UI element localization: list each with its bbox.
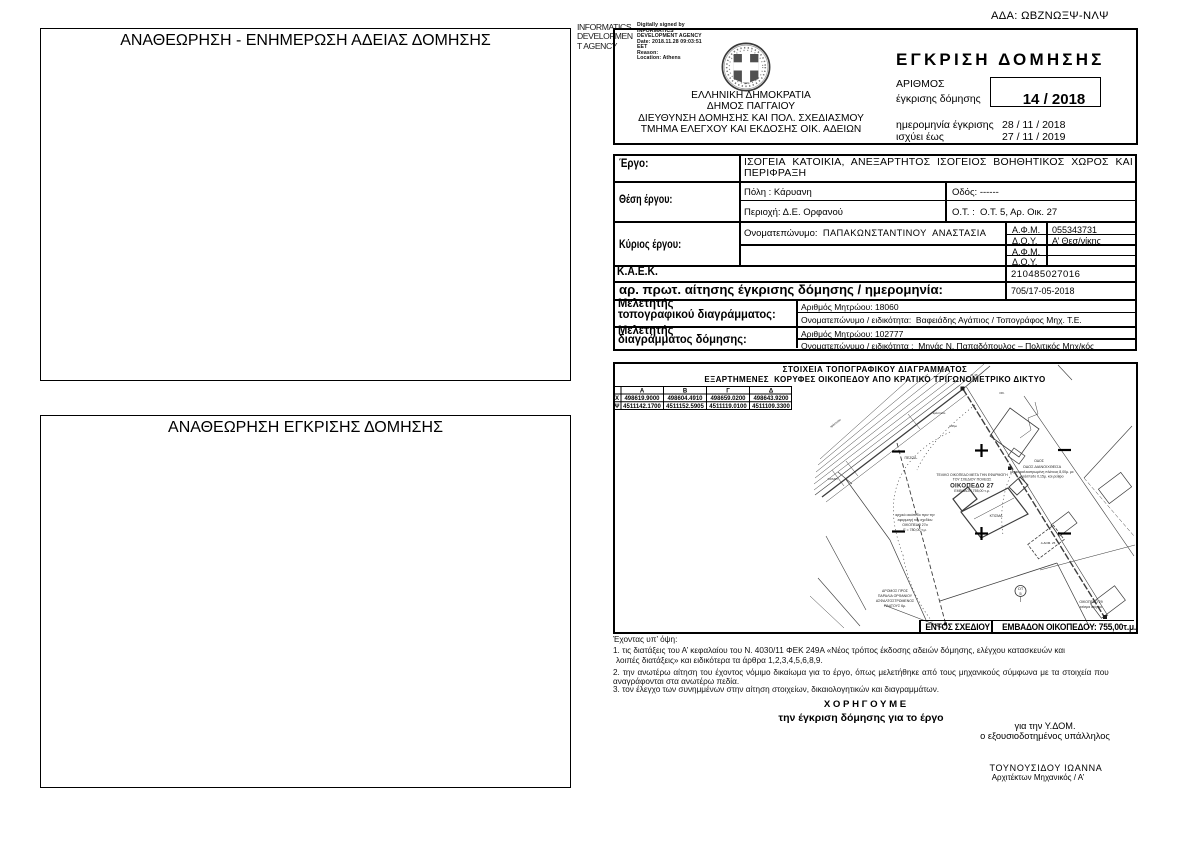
svg-text:5: 5 [1019, 591, 1022, 596]
svg-text:ΟΙΚΟΠΕΔΟ 27α: ΟΙΚΟΠΕΔΟ 27α [902, 523, 927, 527]
svg-text:ΟΔΟΣ: ΟΔΟΣ [1034, 459, 1045, 463]
svg-text:κράσπεδο 0,15μ. και ρείθρο: κράσπεδο 0,15μ. και ρείθρο [1020, 475, 1063, 479]
svg-text:ΑΣΦΑΛΤΟΣΤΡΩΜΕΝΟΣ: ΑΣΦΑΛΤΟΣΤΡΩΜΕΝΟΣ [876, 599, 915, 603]
svg-text:κτίσμα ισόγειο: κτίσμα ισόγειο [1080, 605, 1102, 609]
svg-text:κράσπεδο: κράσπεδο [829, 418, 842, 429]
svg-text:ΠΕΖΟΔ.: ΠΕΖΟΔ. [905, 456, 918, 460]
svg-text:Ε = 780,00 τ.μ.: Ε = 780,00 τ.μ. [903, 528, 926, 532]
svg-text:ΚΡΑΣΠ.: ΚΡΑΣΠ. [828, 477, 839, 481]
svg-text:κράσπεδο: κράσπεδο [933, 411, 946, 415]
svg-text:ΟΔΟΣ ΔΙΑΝΟΙΧΘΕΙΣΑ: ΟΔΟΣ ΔΙΑΝΟΙΧΘΕΙΣΑ [1023, 465, 1062, 469]
svg-text:ρείθρο: ρείθρο [949, 424, 958, 428]
svg-text:μη ασφαλτοστρωμένη πλάτους 8,0: μη ασφαλτοστρωμένη πλάτους 8,00μ. με [1010, 470, 1074, 474]
svg-text:αρχικό οικόπεδο πριν την: αρχικό οικόπεδο πριν την [895, 513, 935, 517]
svg-text:ΠΛΑΤΟΥΣ 6μ.: ΠΛΑΤΟΥΣ 6μ. [884, 604, 906, 608]
svg-text:21.35: 21.35 [971, 373, 978, 377]
svg-text:ΠΑΡΑΛΙΑ ΟΡΦΑΝΙΟΥ: ΠΑΡΑΛΙΑ ΟΡΦΑΝΙΟΥ [878, 594, 913, 598]
svg-text:Α.ΔΟΜ. 25: Α.ΔΟΜ. 25 [1041, 541, 1056, 545]
svg-text:ΚΤΙΣΜΑ: ΚΤΙΣΜΑ [990, 514, 1004, 518]
svg-text:ΕΜΒΑΔΟΝ 755,00 τ.μ.: ΕΜΒΑΔΟΝ 755,00 τ.μ. [954, 489, 989, 493]
svg-text:ΤΟΥ ΣΧΕΔΙΟΥ ΠΟΛΕΩΣ: ΤΟΥ ΣΧΕΔΙΟΥ ΠΟΛΕΩΣ [953, 478, 992, 482]
svg-text:εφαρμογή του σχεδίου: εφαρμογή του σχεδίου [898, 518, 933, 522]
svg-text:ΤΕΛΙΚΟ ΟΙΚΟΠΕΔΟ ΜΕΤΑ ΤΗΝ ΕΦΑΡΜ: ΤΕΛΙΚΟ ΟΙΚΟΠΕΔΟ ΜΕΤΑ ΤΗΝ ΕΦΑΡΜΟΓΗ [936, 473, 1008, 477]
svg-text:ΟΙΚ.: ΟΙΚ. [999, 391, 1005, 395]
svg-text:ΟΙΚΟΠΕΔΟ 29: ΟΙΚΟΠΕΔΟ 29 [1079, 600, 1102, 604]
svg-text:ΔΡΟΜΟΣ ΠΡΟΣ: ΔΡΟΜΟΣ ΠΡΟΣ [882, 589, 909, 593]
